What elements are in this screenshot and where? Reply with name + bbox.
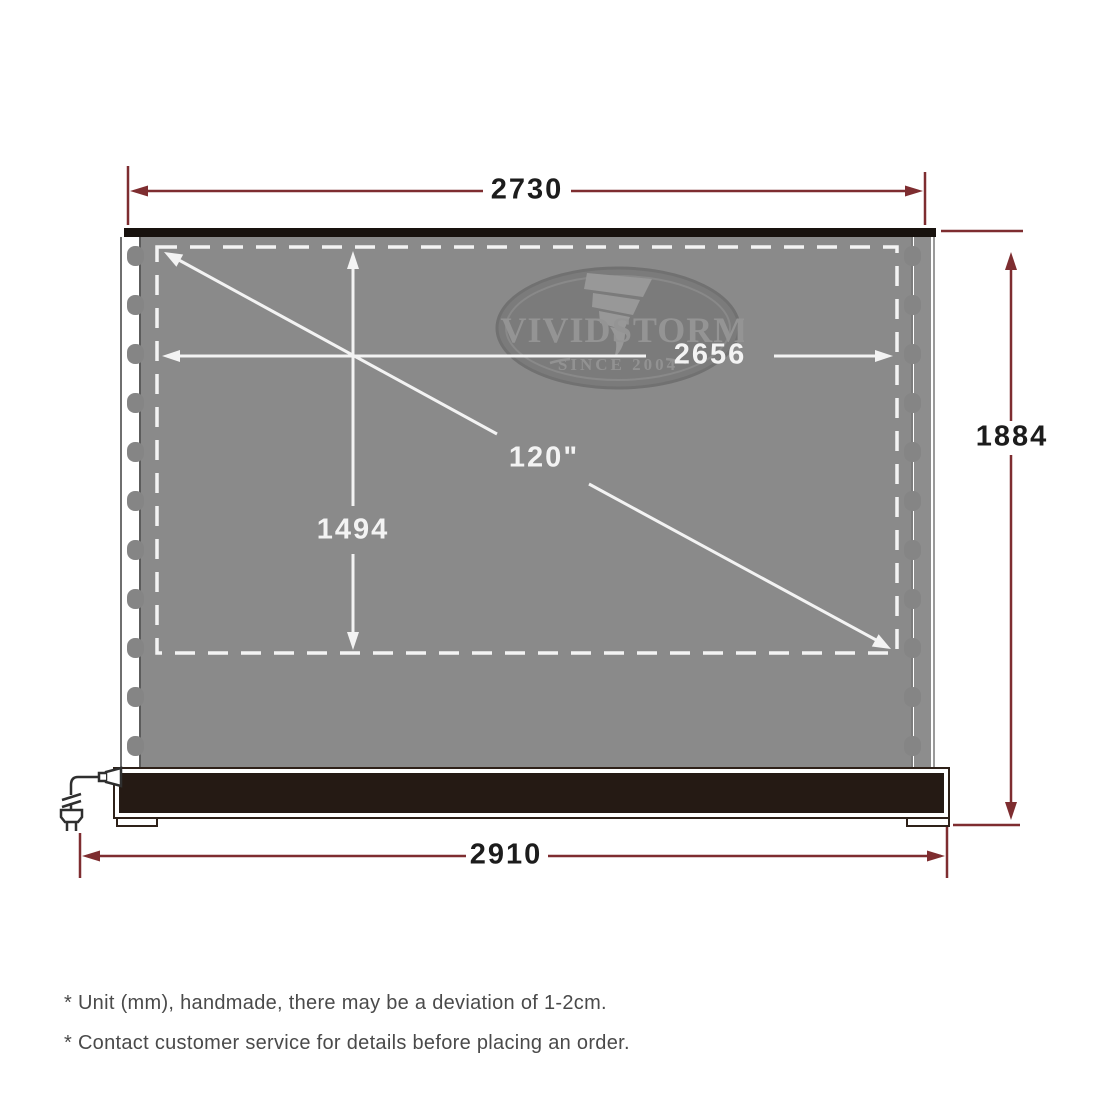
side-tension-tab [127,344,144,364]
viewable-width-label: 2656 [674,339,747,372]
side-tension-tab [904,687,921,707]
side-tension-tab [904,736,921,756]
logo-tagline: SINCE 2004 [558,355,678,374]
side-tension-tab [904,295,921,315]
footnote-unit: * Unit (mm), handmade, there may be a de… [64,992,607,1015]
diagonal-size-label: 120" [509,442,579,475]
side-tension-tab [127,687,144,707]
viewable-height-label: 1494 [317,514,390,547]
power-plug-icon [61,768,121,831]
side-tension-tab [127,295,144,315]
screen-top-bar [124,228,936,237]
side-tension-tab [904,589,921,609]
side-tension-tab [127,540,144,560]
left-tab-column [127,246,144,786]
logo-text-vivid: VIVID [500,310,611,350]
base-foot-left [116,817,158,827]
side-tension-tab [904,540,921,560]
total-height-dimension [941,231,1023,825]
side-tension-tab [904,344,921,364]
side-tension-tab [904,491,921,511]
footnote-contact: * Contact customer service for details b… [64,1032,630,1055]
side-tension-tab [127,393,144,413]
side-tension-tab [127,442,144,462]
base-foot-right [906,817,950,827]
top-width-label: 2730 [491,174,564,207]
side-tension-tab [127,589,144,609]
side-tension-tab [904,393,921,413]
side-tension-tab [127,736,144,756]
vividstorm-logo: VIVID STORM SINCE 2004 [492,263,744,393]
side-tension-tab [904,638,921,658]
side-tension-tab [127,246,144,266]
base-width-label: 2910 [470,839,543,872]
side-tension-tab [127,491,144,511]
left-guide-rail [120,237,122,767]
right-tab-column [904,246,921,786]
side-tension-tab [904,246,921,266]
motorized-base-housing [113,767,950,819]
total-height-label: 1884 [976,421,1049,454]
right-guide-rail-edge [933,237,935,767]
side-tension-tab [904,442,921,462]
side-tension-tab [127,638,144,658]
screen-dimension-diagram: VIVID STORM SINCE 2004 [0,0,1096,1096]
